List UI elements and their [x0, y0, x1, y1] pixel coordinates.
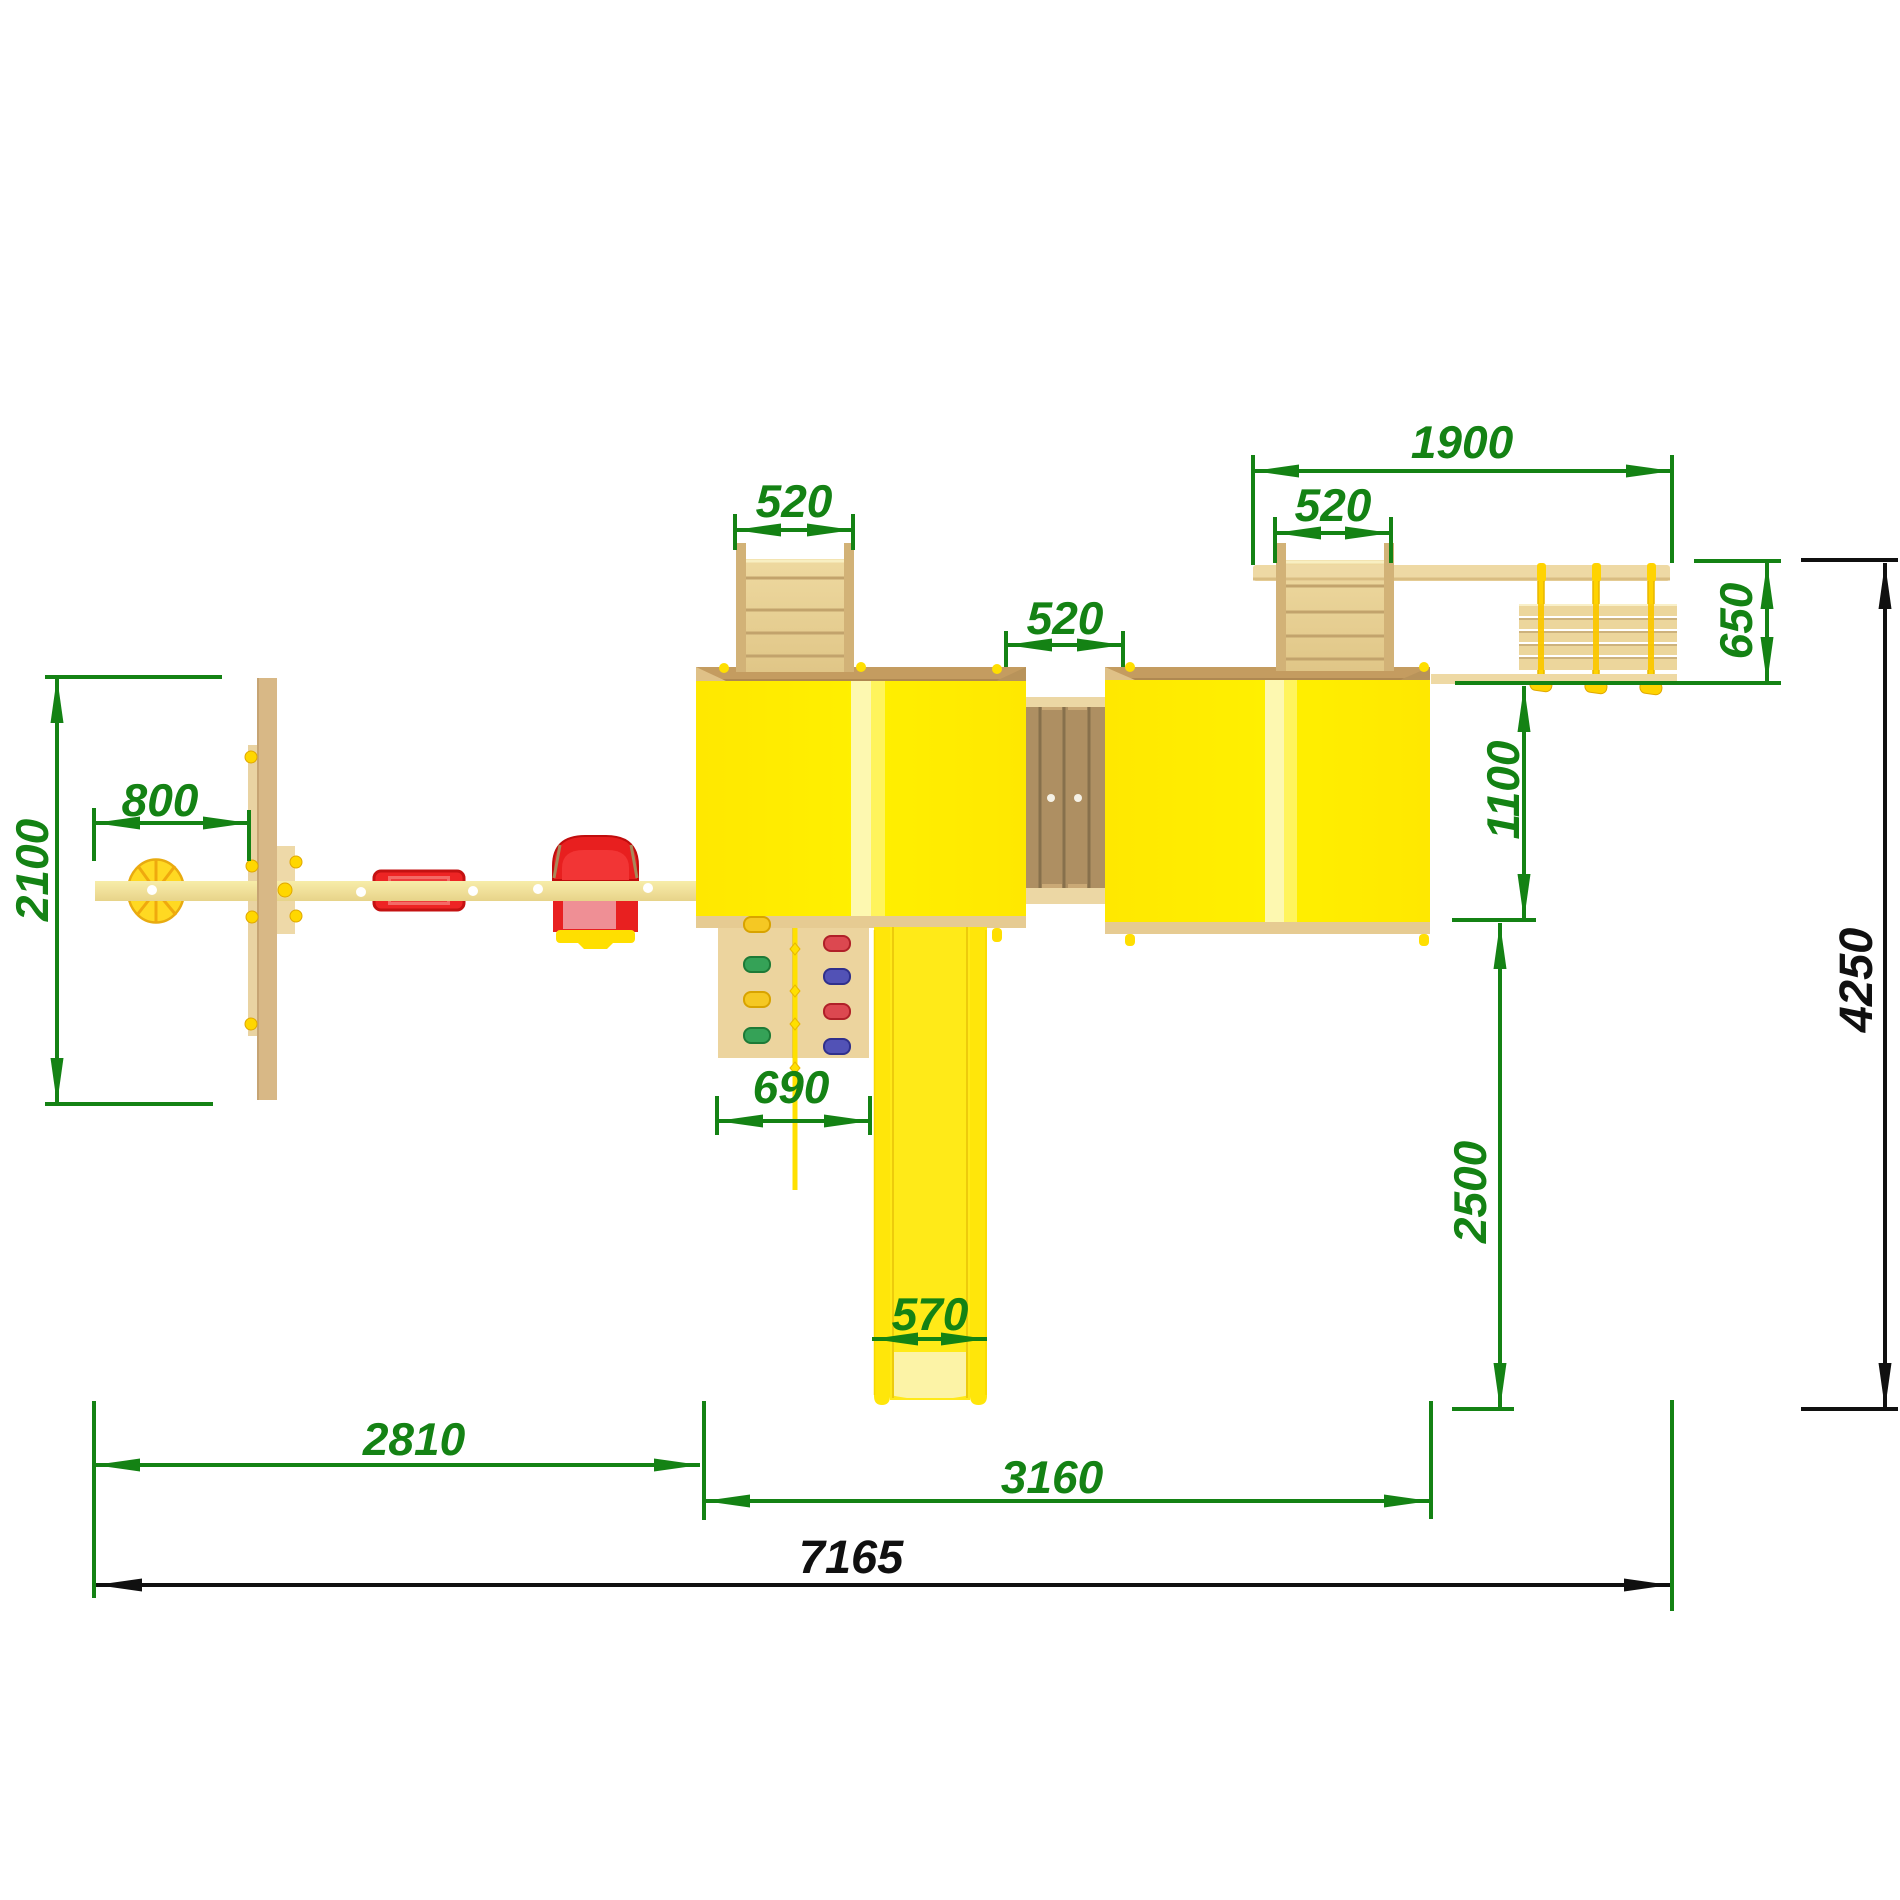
svg-text:520: 520	[1027, 592, 1104, 644]
svg-text:4250: 4250	[1829, 928, 1882, 1034]
svg-text:520: 520	[1295, 479, 1372, 531]
svg-text:1100: 1100	[1477, 740, 1529, 839]
svg-text:1900: 1900	[1411, 416, 1514, 468]
svg-text:650: 650	[1710, 582, 1762, 659]
svg-text:2500: 2500	[1444, 1140, 1496, 1244]
svg-text:2810: 2810	[362, 1413, 466, 1465]
svg-text:2100: 2100	[6, 818, 58, 922]
svg-text:520: 520	[756, 475, 833, 527]
svg-text:800: 800	[122, 774, 199, 826]
svg-text:690: 690	[753, 1061, 830, 1113]
svg-text:570: 570	[892, 1288, 969, 1340]
svg-text:3160: 3160	[1001, 1451, 1104, 1503]
svg-text:7165: 7165	[799, 1530, 904, 1583]
